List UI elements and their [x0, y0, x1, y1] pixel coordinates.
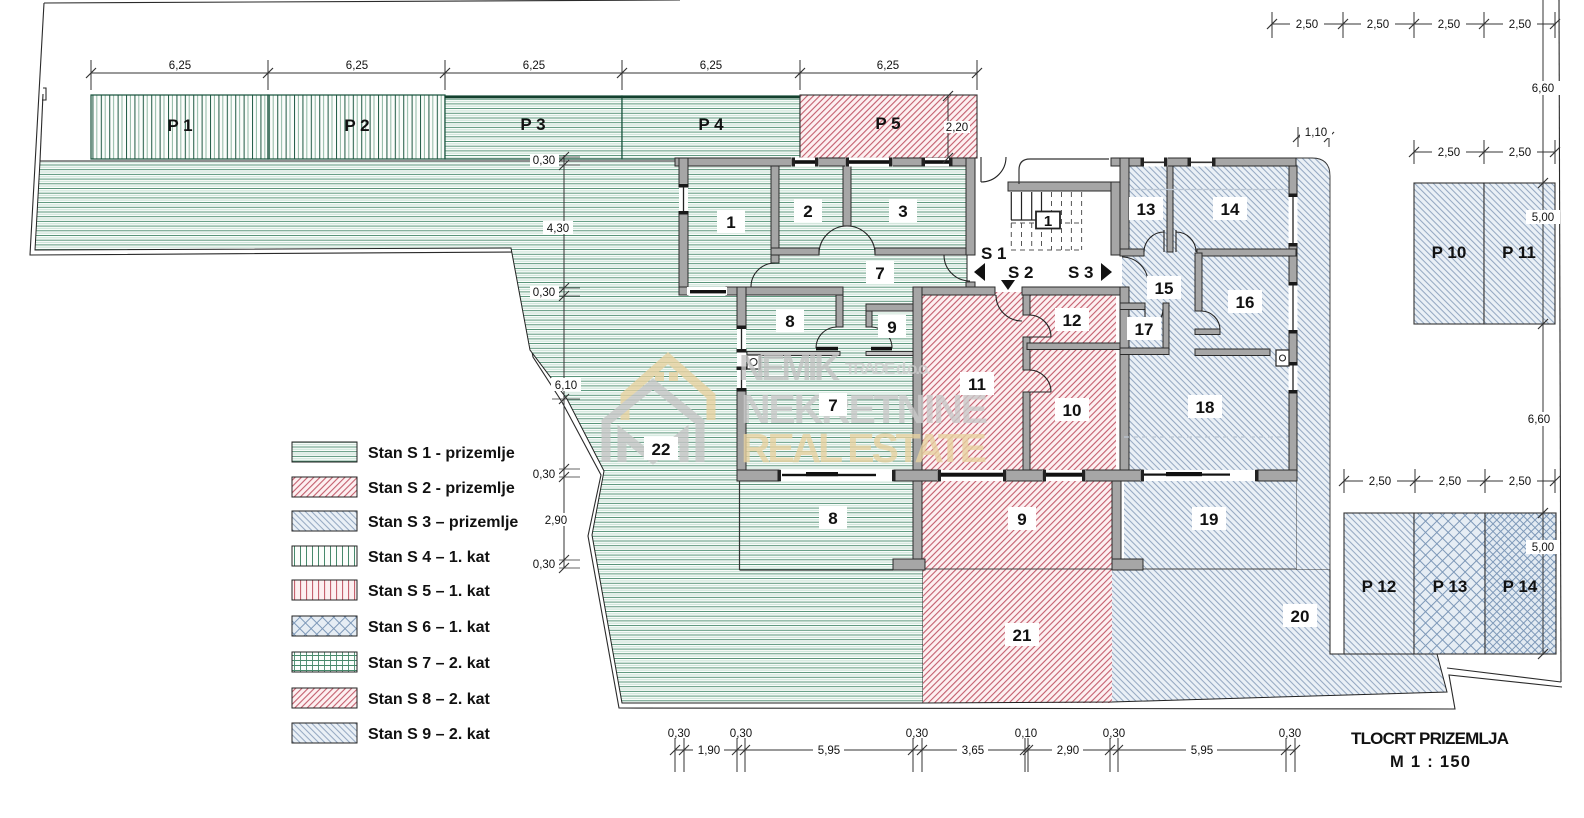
- svg-text:6,60: 6,60: [1532, 83, 1554, 95]
- svg-text:2,90: 2,90: [545, 515, 567, 527]
- svg-text:P 11: P 11: [1502, 243, 1536, 262]
- svg-text:14: 14: [1221, 200, 1240, 219]
- svg-text:20: 20: [1291, 607, 1310, 626]
- svg-text:NEMIK: NEMIK: [739, 347, 840, 388]
- svg-text:17: 17: [1135, 320, 1154, 339]
- svg-text:6,25: 6,25: [700, 60, 722, 72]
- svg-text:P 12: P 12: [1362, 577, 1397, 596]
- svg-text:Stan S 8 – 2. kat: Stan S 8 – 2. kat: [368, 691, 491, 708]
- svg-text:3,65: 3,65: [962, 745, 984, 757]
- svg-text:2,50: 2,50: [1438, 19, 1460, 31]
- svg-text:2,90: 2,90: [1057, 745, 1079, 757]
- svg-text:4,30: 4,30: [547, 223, 569, 235]
- svg-text:P 4: P 4: [698, 115, 724, 134]
- svg-text:12: 12: [1063, 311, 1082, 330]
- svg-text:Stan S 7 – 2. kat: Stan S 7 – 2. kat: [368, 655, 491, 672]
- svg-text:2,50: 2,50: [1367, 19, 1389, 31]
- svg-text:P 5: P 5: [875, 114, 900, 133]
- svg-text:15: 15: [1155, 279, 1174, 298]
- svg-text:TLOCRT PRIZEMLJA: TLOCRT PRIZEMLJA: [1351, 729, 1509, 748]
- svg-text:0,30: 0,30: [668, 728, 690, 740]
- svg-text:2: 2: [803, 202, 812, 221]
- svg-text:5,95: 5,95: [818, 745, 840, 757]
- svg-text:0,30: 0,30: [533, 559, 555, 571]
- svg-text:0,10: 0,10: [1015, 728, 1037, 740]
- svg-text:3: 3: [898, 202, 907, 221]
- svg-text:Stan S 4 – 1. kat: Stan S 4 – 1. kat: [368, 549, 491, 566]
- svg-text:2,50: 2,50: [1509, 147, 1531, 159]
- svg-text:Stan S 9 – 2. kat: Stan S 9 – 2. kat: [368, 726, 491, 743]
- svg-text:6,25: 6,25: [523, 60, 545, 72]
- svg-text:1: 1: [1044, 213, 1052, 230]
- svg-text:0,30: 0,30: [533, 469, 555, 481]
- svg-text:M 1 : 150: M 1 : 150: [1390, 753, 1470, 771]
- svg-text:22: 22: [652, 440, 671, 459]
- svg-text:0,30: 0,30: [730, 728, 752, 740]
- svg-text:8: 8: [828, 509, 837, 528]
- svg-text:7: 7: [828, 396, 837, 415]
- svg-text:0,30: 0,30: [533, 155, 555, 167]
- svg-text:5,95: 5,95: [1191, 745, 1213, 757]
- svg-text:S 1: S 1: [981, 244, 1007, 263]
- svg-text:P 10: P 10: [1432, 243, 1467, 262]
- svg-text:TRADE d.o.o.: TRADE d.o.o.: [845, 359, 931, 378]
- svg-text:2,50: 2,50: [1296, 19, 1318, 31]
- svg-text:S 2: S 2: [1008, 263, 1034, 282]
- svg-text:0,30: 0,30: [1279, 728, 1301, 740]
- svg-text:Stan S 6 – 1. kat: Stan S 6 – 1. kat: [368, 619, 491, 636]
- svg-text:0,30: 0,30: [533, 287, 555, 299]
- svg-text:Stan S 5 – 1. kat: Stan S 5 – 1. kat: [368, 583, 491, 600]
- svg-text:9: 9: [1017, 510, 1026, 529]
- svg-text:16: 16: [1236, 293, 1255, 312]
- svg-text:7: 7: [875, 264, 884, 283]
- svg-text:6,60: 6,60: [1528, 414, 1550, 426]
- svg-text:5,00: 5,00: [1532, 542, 1554, 554]
- svg-text:Stan S 2 - prizemlje: Stan S 2 - prizemlje: [368, 480, 515, 497]
- svg-text:2,50: 2,50: [1369, 476, 1391, 488]
- svg-text:8: 8: [785, 312, 794, 331]
- svg-text:10: 10: [1063, 401, 1082, 420]
- svg-text:11: 11: [968, 375, 986, 394]
- svg-text:1,10: 1,10: [1305, 127, 1327, 139]
- svg-text:2,50: 2,50: [1509, 19, 1531, 31]
- svg-text:6,25: 6,25: [169, 60, 191, 72]
- svg-text:6,25: 6,25: [877, 60, 899, 72]
- svg-text:P 13: P 13: [1433, 577, 1468, 596]
- svg-text:2,50: 2,50: [1439, 476, 1461, 488]
- svg-text:18: 18: [1196, 398, 1215, 417]
- svg-text:Stan S 1 - prizemlje: Stan S 1 - prizemlje: [368, 445, 515, 462]
- svg-text:P 1: P 1: [167, 116, 192, 135]
- svg-text:19: 19: [1200, 510, 1219, 529]
- svg-text:2,50: 2,50: [1438, 147, 1460, 159]
- svg-text:1,90: 1,90: [698, 745, 720, 757]
- svg-text:P 14: P 14: [1503, 577, 1538, 596]
- svg-text:2,50: 2,50: [1509, 476, 1531, 488]
- svg-text:2,20: 2,20: [946, 122, 968, 134]
- svg-text:5,00: 5,00: [1532, 212, 1554, 224]
- svg-text:P 2: P 2: [344, 116, 369, 135]
- svg-text:REAL ESTATE: REAL ESTATE: [741, 425, 987, 471]
- svg-text:0,30: 0,30: [906, 728, 928, 740]
- svg-text:21: 21: [1013, 626, 1032, 645]
- svg-text:9: 9: [887, 318, 896, 337]
- svg-text:S 3: S 3: [1068, 263, 1094, 282]
- svg-text:0,30: 0,30: [1103, 728, 1125, 740]
- svg-text:13: 13: [1137, 200, 1156, 219]
- svg-text:Stan S 3 – prizemlje: Stan S 3 – prizemlje: [368, 514, 518, 531]
- svg-text:1: 1: [726, 213, 735, 232]
- svg-text:6,25: 6,25: [346, 60, 368, 72]
- svg-text:P 3: P 3: [520, 115, 545, 134]
- svg-text:6,10: 6,10: [555, 380, 577, 392]
